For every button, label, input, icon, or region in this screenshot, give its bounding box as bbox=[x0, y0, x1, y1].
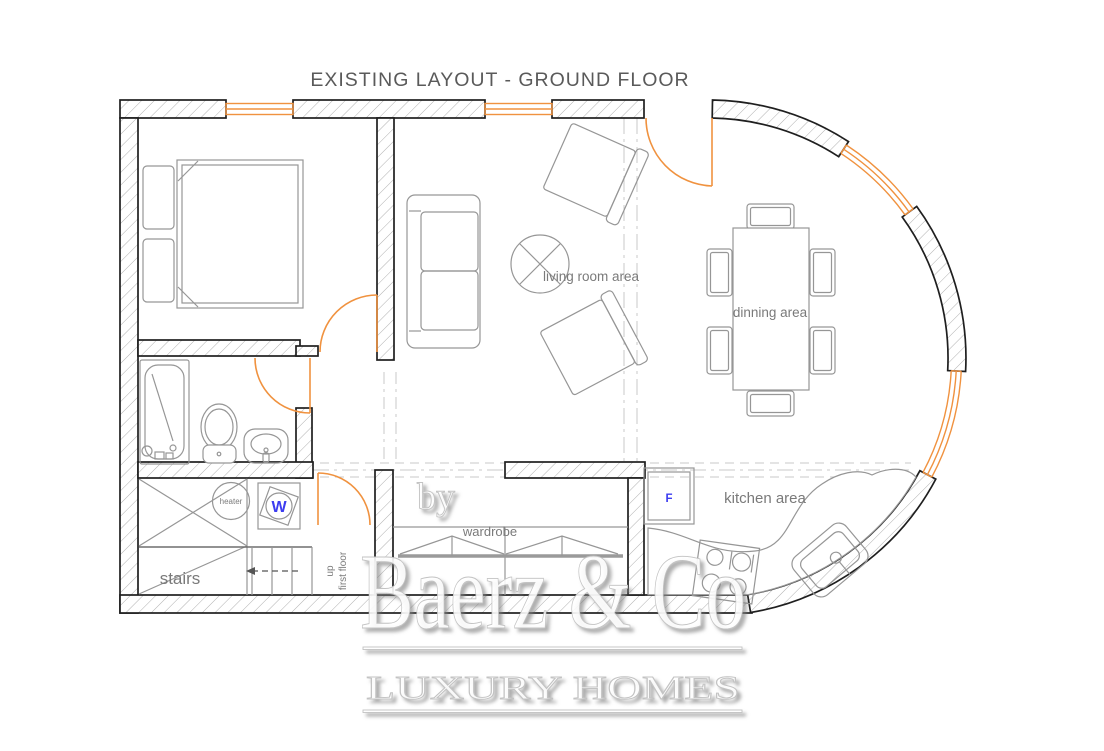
window-curved-2 bbox=[923, 371, 961, 477]
watermark: by Baerz & Co LUXURY HOMES bbox=[360, 476, 746, 713]
dining-chair bbox=[747, 391, 794, 416]
floor-plan-drawing: EXISTING LAYOUT - GROUND FLOOR bbox=[0, 0, 1104, 751]
window-top-1 bbox=[226, 104, 293, 115]
fridge-label: F bbox=[665, 493, 672, 505]
bed bbox=[143, 160, 303, 308]
armchair-bottom bbox=[538, 289, 649, 399]
door-laundry bbox=[318, 473, 370, 525]
wall-kitchen-top bbox=[505, 462, 645, 478]
wall-bedroom-bath bbox=[138, 340, 300, 356]
watermark-rule-bottom bbox=[363, 710, 742, 713]
watermark-by: by bbox=[417, 476, 455, 518]
bedroom bbox=[143, 160, 303, 308]
dining-chair bbox=[810, 249, 835, 296]
dining-chair bbox=[810, 327, 835, 374]
fridge: F bbox=[644, 468, 694, 524]
stairs-up-label: up bbox=[325, 565, 336, 577]
kitchen-label: kitchen area bbox=[724, 490, 806, 507]
door-bathroom bbox=[255, 358, 310, 413]
coffee-table bbox=[511, 235, 569, 293]
curved-wall-top bbox=[712, 100, 848, 157]
washing-machine: W bbox=[258, 483, 300, 529]
wall-bedroom-living bbox=[377, 118, 394, 360]
door-entrance bbox=[646, 118, 712, 186]
living-room: living room area bbox=[407, 119, 650, 399]
door-bedroom bbox=[320, 295, 377, 352]
dining-area: dinning area bbox=[707, 204, 835, 416]
bathroom bbox=[140, 360, 288, 464]
stairs-label: stairs bbox=[160, 569, 201, 588]
windows bbox=[226, 104, 961, 478]
curved-wall-mid bbox=[902, 206, 966, 371]
sofa bbox=[407, 195, 480, 348]
armchair-top bbox=[541, 119, 649, 226]
heater-label: heater bbox=[220, 497, 243, 506]
washer-label: W bbox=[271, 499, 287, 516]
watermark-rule-top bbox=[363, 647, 742, 650]
stairs-first-floor-label: first floor bbox=[338, 551, 349, 590]
floor-plan-page: EXISTING LAYOUT - GROUND FLOOR bbox=[0, 0, 1104, 751]
window-curved-1 bbox=[841, 145, 913, 215]
bathtub bbox=[140, 360, 189, 464]
heater: heater bbox=[213, 483, 250, 520]
window-top-2 bbox=[485, 104, 552, 115]
dining-label: dinning area bbox=[733, 305, 808, 320]
dining-chair bbox=[747, 204, 794, 229]
dining-chair bbox=[707, 249, 732, 296]
bathroom-sink bbox=[244, 429, 288, 463]
watermark-tagline: LUXURY HOMES bbox=[366, 670, 740, 707]
page-title: EXISTING LAYOUT - GROUND FLOOR bbox=[310, 69, 689, 91]
toilet bbox=[201, 404, 237, 463]
dining-chair bbox=[707, 327, 732, 374]
watermark-brand: Baerz & Co bbox=[360, 533, 746, 652]
living-room-label: living room area bbox=[543, 269, 640, 284]
